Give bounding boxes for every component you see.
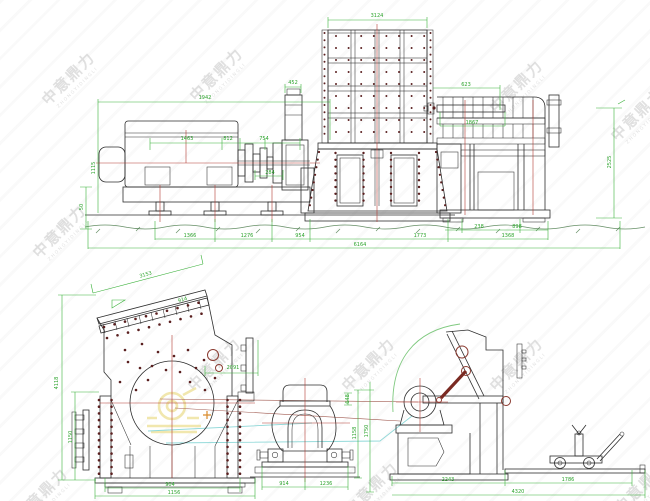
- bolt-dot: [411, 35, 413, 37]
- bolt-dot: [110, 459, 113, 462]
- bolt-dot: [139, 367, 142, 370]
- bolt-dot: [226, 412, 229, 415]
- bolt-dot: [334, 172, 336, 174]
- bolt-dot: [360, 59, 362, 61]
- bolt-dot: [317, 159, 319, 161]
- bolt-dot: [430, 126, 432, 128]
- dimension-label: 1236: [320, 481, 333, 487]
- bolt-dot: [411, 95, 413, 97]
- bolt-dot: [226, 426, 229, 429]
- bolt-dot: [334, 159, 336, 161]
- bolt-dot: [190, 315, 193, 318]
- bolt-dot: [385, 119, 387, 121]
- bolt-dot: [373, 119, 375, 121]
- bolt-dot: [157, 351, 160, 354]
- bolt-dot: [362, 165, 364, 167]
- bolt-dot: [239, 459, 242, 462]
- bolt-dot: [98, 426, 101, 429]
- bolt-dot: [430, 46, 432, 48]
- bolt-dot: [390, 186, 392, 188]
- top-view-side-elevation: [80, 17, 645, 249]
- drawing-canvas: 中意鼎力ZHONGYIDINGLI中意鼎力ZHONGYIDINGLI中意鼎力ZH…: [0, 0, 650, 501]
- bolt-dot: [309, 204, 311, 206]
- bolt-dot: [324, 75, 326, 77]
- bolt-dot: [398, 131, 400, 133]
- dimension-label: 898: [512, 224, 522, 230]
- bolt-dot: [398, 47, 400, 49]
- bolt-dot: [373, 59, 375, 61]
- bolt-dot: [127, 331, 130, 334]
- dimension-label: 1867: [466, 120, 479, 126]
- bolt-dot: [360, 35, 362, 37]
- bolt-dot: [110, 432, 113, 435]
- bolt-dot: [187, 304, 190, 307]
- bolt-dot: [360, 95, 362, 97]
- bolt-dot: [315, 166, 317, 168]
- bolt-dot: [98, 419, 101, 422]
- bolt-dot: [239, 412, 242, 415]
- bolt-dot: [411, 71, 413, 73]
- bolt-dot: [324, 68, 326, 70]
- dimension-label: 50: [79, 204, 85, 210]
- bolt-dot: [373, 35, 375, 37]
- dimension-label: 904: [165, 482, 175, 488]
- bolt-dot: [334, 193, 336, 195]
- dimension-label: 1786: [562, 477, 575, 483]
- bolt-dot: [197, 301, 200, 304]
- bolt-dot: [362, 172, 364, 174]
- bolt-dot: [373, 131, 375, 133]
- bolt-dot: [98, 446, 101, 449]
- bolt-dot: [385, 95, 387, 97]
- bolt-dot: [335, 59, 337, 61]
- bolt-dot: [385, 35, 387, 37]
- bolt-dot: [239, 426, 242, 429]
- bolt-dot: [418, 193, 420, 195]
- bolt-dot: [110, 419, 113, 422]
- bolt-dot: [443, 197, 445, 199]
- dimension-label: 238: [474, 224, 484, 230]
- bolt-dot: [390, 172, 392, 174]
- bolt-dot: [98, 405, 101, 408]
- bolt-dot: [113, 323, 116, 326]
- bolt-dot: [98, 412, 101, 415]
- bolt-dot: [334, 186, 336, 188]
- bolt-dot: [318, 151, 320, 153]
- dimension-label: 1276: [241, 233, 254, 239]
- bolt-dot: [239, 466, 242, 469]
- bolt-dot: [106, 337, 109, 340]
- bolt-dot: [430, 97, 432, 99]
- bolt-dot: [348, 107, 350, 109]
- watermark-text: 中意鼎力ZHONGYIDINGLI: [607, 84, 650, 150]
- bolt-dot: [385, 59, 387, 61]
- bolt-dot: [335, 119, 337, 121]
- bolt-dot: [423, 131, 425, 133]
- bolt-dot: [226, 419, 229, 422]
- bolt-dot: [440, 181, 442, 183]
- front-view-end-elevation: [58, 255, 258, 499]
- bolt-dot: [189, 381, 192, 384]
- bolt-dot: [390, 193, 392, 195]
- svg-text:中意鼎力: 中意鼎力: [341, 458, 402, 501]
- bolt-dot: [324, 133, 326, 135]
- bolt-dot: [423, 59, 425, 61]
- bolt-dot: [313, 181, 315, 183]
- bolt-dot: [324, 61, 326, 63]
- bolt-dot: [239, 419, 242, 422]
- bolt-dot: [423, 95, 425, 97]
- dimension-label: 623: [461, 82, 471, 88]
- bolt-dot: [127, 361, 130, 364]
- crusher-lower-housing: [305, 143, 450, 221]
- bolt-dot: [411, 59, 413, 61]
- bolt-dot: [334, 165, 336, 167]
- bolt-dot: [411, 83, 413, 85]
- dimension-label: 452: [288, 80, 298, 86]
- bolt-dot: [430, 68, 432, 70]
- bolt-dot: [116, 334, 119, 337]
- dimension-label: 754: [259, 136, 269, 142]
- bolt-dot: [324, 126, 326, 128]
- bolt-dot: [195, 367, 198, 370]
- bolt-dot: [179, 318, 182, 321]
- bolt-dot: [165, 369, 168, 372]
- svg-text:中意鼎力: 中意鼎力: [611, 456, 650, 501]
- bolt-dot: [324, 32, 326, 34]
- bolt-dot: [385, 131, 387, 133]
- bolt-dot: [373, 47, 375, 49]
- dimension-label: 3153: [139, 270, 153, 279]
- bolt-dot: [214, 377, 217, 380]
- bolt-dot: [423, 107, 425, 109]
- bolt-dot: [310, 197, 312, 199]
- bolt-dot: [124, 349, 127, 352]
- bolt-dot: [430, 104, 432, 106]
- bolt-dot: [362, 193, 364, 195]
- bolt-dot: [423, 119, 425, 121]
- bolt-dot: [398, 95, 400, 97]
- bolt-dot: [373, 95, 375, 97]
- bolt-dot: [148, 326, 151, 329]
- bolt-dot: [98, 466, 101, 469]
- side-flange-fitting: [72, 410, 89, 470]
- dimension-label: 914: [279, 481, 289, 487]
- dimension-label: 2243: [442, 477, 455, 483]
- bolt-dot: [324, 90, 326, 92]
- dimension-label: 1366: [184, 233, 197, 239]
- dimension-label: 954: [295, 233, 305, 239]
- bolt-dot: [147, 379, 150, 382]
- bolt-dot: [98, 432, 101, 435]
- bolt-dot: [362, 179, 364, 181]
- logo-watermark: [147, 388, 201, 432]
- bolt-dot: [390, 199, 392, 201]
- bolt-dot: [137, 329, 140, 332]
- bolt-dot: [324, 54, 326, 56]
- bolt-dot: [239, 446, 242, 449]
- bolt-dot: [239, 432, 242, 435]
- bolt-dot: [334, 179, 336, 181]
- crusher-drawing-svg: 中意鼎力ZHONGYIDINGLI中意鼎力ZHONGYIDINGLI中意鼎力ZH…: [0, 0, 650, 501]
- bolt-dot: [398, 71, 400, 73]
- bolt-dot: [360, 107, 362, 109]
- bolt-dot: [110, 405, 113, 408]
- bolt-dot: [373, 71, 375, 73]
- bolt-dot: [98, 459, 101, 462]
- bolt-dot: [335, 35, 337, 37]
- bolt-dot: [348, 95, 350, 97]
- bolt-dot: [203, 359, 206, 362]
- bolt-dot: [334, 152, 336, 154]
- dimension-label: 1463: [181, 136, 194, 142]
- bolt-dot: [385, 83, 387, 85]
- bolt-dot: [226, 452, 229, 455]
- bolt-dot: [110, 399, 113, 402]
- bolt-dot: [324, 46, 326, 48]
- bolt-dot: [110, 426, 113, 429]
- bolt-dot: [418, 199, 420, 201]
- bolt-dot: [103, 326, 106, 329]
- bolt-dot: [444, 204, 446, 206]
- bolt-dot: [98, 439, 101, 442]
- bolt-dot: [441, 189, 443, 191]
- bolt-dot: [335, 71, 337, 73]
- bolt-dot: [226, 405, 229, 408]
- bolt-dot: [348, 59, 350, 61]
- bolt-dot: [158, 323, 161, 326]
- bolt-dot: [360, 131, 362, 133]
- bolt-dot: [134, 318, 137, 321]
- bolt-dot: [311, 189, 313, 191]
- bolt-dot: [98, 399, 101, 402]
- bolt-dot: [362, 159, 364, 161]
- bolt-dot: [98, 472, 101, 475]
- bolt-dot: [141, 343, 144, 346]
- dimension-label: 1150: [68, 431, 74, 444]
- bolt-dot: [430, 118, 432, 120]
- dimension-label: 3124: [371, 13, 384, 19]
- front-housing: [95, 290, 255, 493]
- pulley-housing: [282, 89, 314, 213]
- bolt-dot: [362, 152, 364, 154]
- svg-text:中意鼎力: 中意鼎力: [607, 84, 650, 145]
- bolt-dot: [226, 472, 229, 475]
- dimension-label: 1942: [199, 95, 212, 101]
- bolt-dot: [335, 131, 337, 133]
- bolt-dot: [418, 186, 420, 188]
- bolt-dot: [398, 59, 400, 61]
- bolt-dot: [173, 355, 176, 358]
- dimension-label: 2091: [227, 365, 240, 371]
- bolt-dot: [324, 104, 326, 106]
- dimension-label: 648: [345, 394, 351, 404]
- bolt-dot: [239, 472, 242, 475]
- bolt-dot: [324, 39, 326, 41]
- bolt-dot: [169, 321, 172, 324]
- bolt-dot: [124, 320, 127, 323]
- bolt-dot: [110, 466, 113, 469]
- bolt-dot: [360, 83, 362, 85]
- watermark-text: 中意鼎力ZHONGYIDINGLI: [11, 464, 77, 501]
- dimension-label: 812: [223, 136, 233, 142]
- bolt-dot: [110, 446, 113, 449]
- bolt-dot: [334, 199, 336, 201]
- dimension-label: 1158: [352, 427, 358, 440]
- dimension-label: 6164: [354, 242, 367, 248]
- dimension-label: 1115: [91, 162, 97, 175]
- bolt-dot: [423, 35, 425, 37]
- bolt-dot: [166, 310, 169, 313]
- bolt-dots-layer: [98, 32, 447, 475]
- bolt-dot: [348, 131, 350, 133]
- dimension-label: 1773: [414, 233, 427, 239]
- bolt-dot: [335, 83, 337, 85]
- bolt-dot: [110, 472, 113, 475]
- bolt-dot: [423, 83, 425, 85]
- dimension-label: 4118: [54, 377, 60, 390]
- bolt-dot: [226, 399, 229, 402]
- bolt-dot: [179, 371, 182, 374]
- bolt-dot: [335, 95, 337, 97]
- service-trolley: [505, 425, 645, 473]
- opening-arc: [393, 324, 460, 412]
- bolt-dot: [439, 174, 441, 176]
- bolt-dot: [226, 466, 229, 469]
- bolt-dot: [418, 179, 420, 181]
- bolt-dot: [360, 71, 362, 73]
- bolt-dot: [348, 47, 350, 49]
- bolt-dot: [390, 159, 392, 161]
- dimension-label: 1750: [364, 425, 370, 438]
- bolt-dot: [438, 166, 440, 168]
- bolt-dot: [110, 412, 113, 415]
- bolt-dot: [324, 118, 326, 120]
- bolt-dot: [373, 107, 375, 109]
- bolt-dot: [151, 365, 154, 368]
- bolt-dot: [324, 97, 326, 99]
- bolt-dot: [362, 199, 364, 201]
- watermark-text: 中意鼎力ZHONGYIDINGLI: [341, 458, 407, 501]
- bolt-dot: [430, 39, 432, 41]
- bolt-dot: [411, 131, 413, 133]
- support-structure: [424, 95, 561, 222]
- centerlines-bearing: [262, 378, 350, 482]
- bolt-dot: [145, 315, 148, 318]
- bolt-dot: [390, 179, 392, 181]
- bolt-dot: [239, 405, 242, 408]
- bolt-dot: [135, 389, 138, 392]
- bolt-dot: [423, 47, 425, 49]
- bolt-dot: [430, 54, 432, 56]
- watermark-text: 中意鼎力ZHONGYIDINGLI: [611, 456, 650, 501]
- bolt-dot: [430, 133, 432, 135]
- bolt-dot: [398, 35, 400, 37]
- bolt-dot: [430, 61, 432, 63]
- bolt-dot: [335, 47, 337, 49]
- bolt-dot: [360, 119, 362, 121]
- bolt-dot: [200, 312, 203, 315]
- crusher-grid-box: [322, 30, 433, 143]
- bolt-dot: [418, 165, 420, 167]
- bolt-dot: [155, 312, 158, 315]
- dimension-label: 4320: [512, 489, 525, 495]
- bolt-dot: [324, 82, 326, 84]
- bolt-dot: [226, 459, 229, 462]
- bolt-dot: [430, 32, 432, 34]
- bolt-dot: [119, 381, 122, 384]
- bolt-dot: [187, 349, 190, 352]
- bolt-dot: [411, 119, 413, 121]
- bolt-dot: [314, 174, 316, 176]
- bolt-dot: [411, 107, 413, 109]
- bolt-dot: [411, 47, 413, 49]
- bolt-dot: [390, 152, 392, 154]
- dimension-label: 1368: [502, 233, 515, 239]
- bolt-dot: [430, 75, 432, 77]
- bolt-dot: [398, 107, 400, 109]
- bolt-dot: [239, 399, 242, 402]
- bolt-dot: [239, 452, 242, 455]
- bolt-dot: [348, 71, 350, 73]
- bolt-dot: [110, 439, 113, 442]
- bolt-dot: [373, 83, 375, 85]
- bolt-dot: [435, 151, 437, 153]
- watermark-text: 中意鼎力ZHONGYIDINGLI: [186, 44, 252, 110]
- bolt-dot: [204, 389, 207, 392]
- bolt-dot: [362, 186, 364, 188]
- bolt-dot: [226, 432, 229, 435]
- bolt-dot: [423, 71, 425, 73]
- bolt-dot: [385, 107, 387, 109]
- bolt-dot: [398, 83, 400, 85]
- bolt-dot: [430, 111, 432, 113]
- bolt-dot: [430, 82, 432, 84]
- dimension-label: 2525: [607, 156, 613, 169]
- bolt-dot: [385, 47, 387, 49]
- dimension-label: 1156: [168, 490, 181, 496]
- bolt-dot: [335, 107, 337, 109]
- bolt-dot: [436, 159, 438, 161]
- bolt-dot: [239, 439, 242, 442]
- ground-line: [85, 225, 645, 233]
- bolt-dot: [226, 439, 229, 442]
- bolt-dot: [348, 35, 350, 37]
- dimension-label: 284: [265, 170, 275, 176]
- motor: [99, 121, 238, 187]
- watermark-text: 中意鼎力ZHONGYIDINGLI: [38, 48, 104, 114]
- bolt-dot: [418, 152, 420, 154]
- bolt-dot: [348, 83, 350, 85]
- dimension-lines-front: [58, 255, 258, 499]
- bolt-dot: [398, 119, 400, 121]
- bolt-dot: [110, 452, 113, 455]
- bolt-dot: [430, 90, 432, 92]
- bolt-dot: [418, 172, 420, 174]
- bolt-dot: [390, 165, 392, 167]
- bolt-dot: [98, 452, 101, 455]
- bolt-dot: [360, 47, 362, 49]
- bolt-dot: [418, 159, 420, 161]
- watermark-layer: 中意鼎力ZHONGYIDINGLI中意鼎力ZHONGYIDINGLI中意鼎力ZH…: [11, 44, 650, 501]
- bolt-dot: [226, 446, 229, 449]
- bolt-dot: [324, 111, 326, 113]
- bolt-dot: [385, 71, 387, 73]
- bolt-dot: [176, 307, 179, 310]
- bolt-dot: [348, 119, 350, 121]
